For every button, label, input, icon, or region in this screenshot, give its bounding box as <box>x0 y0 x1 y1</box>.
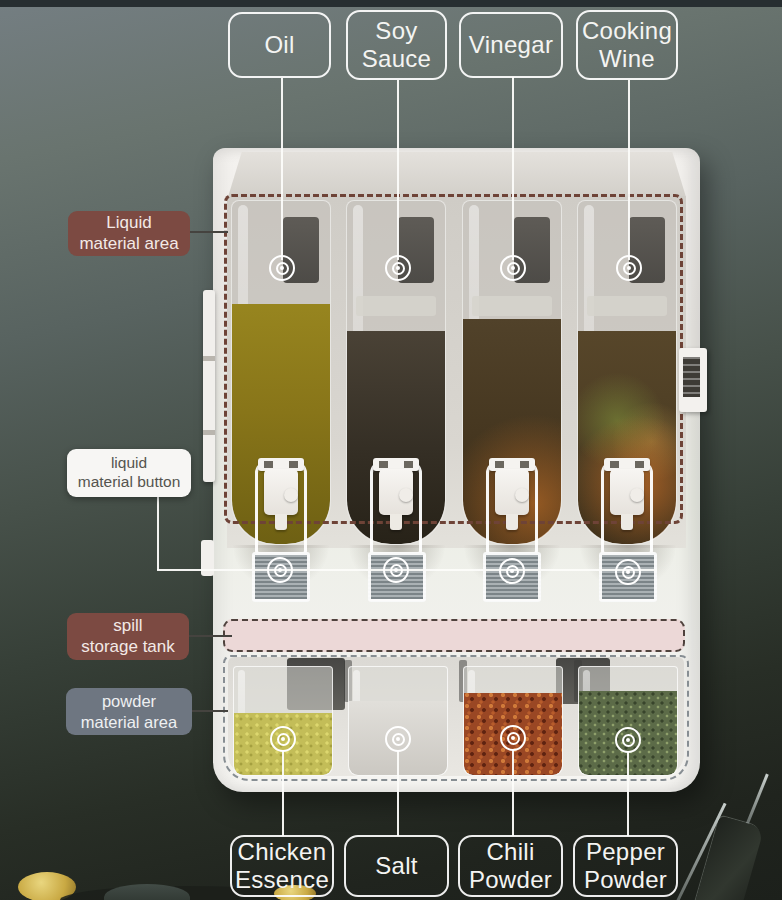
dispense-valve-vinegar <box>484 458 540 558</box>
label-line: material area <box>79 234 178 255</box>
valve-stem <box>390 514 402 530</box>
connector-line <box>512 750 514 836</box>
target-marker-icon <box>615 727 641 753</box>
wall-top-shadow <box>0 0 782 7</box>
target-marker-icon <box>499 558 525 584</box>
label-line: Liquid <box>106 213 151 234</box>
connector-line <box>188 231 228 233</box>
label-line: powder <box>102 691 156 711</box>
dispenser-top-interior <box>228 152 686 197</box>
connector-line <box>628 80 630 260</box>
target-marker-icon <box>385 255 411 281</box>
label-line: liquid <box>111 454 147 473</box>
label-line: Essence <box>235 866 329 894</box>
label-line: Soy <box>375 17 417 45</box>
label-line: Chili <box>486 838 534 866</box>
label-line: material button <box>78 473 181 492</box>
spill-storage-tank-bar <box>223 619 685 652</box>
label-line: Pepper <box>586 838 665 866</box>
top-label-oil: Oil <box>228 12 331 78</box>
dispense-valve-soy-sauce <box>368 458 424 558</box>
side-label-liquid-material-area: Liquid material area <box>68 211 190 256</box>
target-marker-icon <box>616 255 642 281</box>
powder-area-dashed-outline <box>223 655 689 781</box>
label-line: storage tank <box>81 637 175 658</box>
connector-line <box>282 750 284 836</box>
dispense-valve-oil <box>253 458 309 558</box>
valve-knob <box>284 488 298 502</box>
bottom-label-pepper-powder: Pepper Powder <box>573 835 678 897</box>
target-marker-icon <box>383 557 409 583</box>
bottom-label-salt: Salt <box>344 835 449 897</box>
valve-stem <box>506 514 518 530</box>
top-label-vinegar: Vinegar <box>459 12 563 78</box>
target-marker-icon <box>615 559 641 585</box>
target-marker-icon <box>267 557 293 583</box>
target-marker-icon <box>385 726 411 752</box>
connector-line <box>627 751 629 836</box>
valve-knob <box>630 488 644 502</box>
bottom-label-chili-powder: Chili Powder <box>458 835 563 897</box>
valve-knob <box>515 488 529 502</box>
label-line: Cooking <box>582 17 672 45</box>
label-line: Powder <box>584 866 667 894</box>
connector-line <box>512 77 514 260</box>
bottom-label-chicken-essence: Chicken Essence <box>230 835 334 897</box>
wall-mount-rail <box>203 290 215 482</box>
side-label-powder-material-area: powder material area <box>66 688 192 735</box>
connector-line <box>186 635 232 637</box>
target-marker-icon <box>269 255 295 281</box>
label-line: Wine <box>599 45 655 73</box>
side-clip-label <box>683 357 700 397</box>
chopstick <box>744 774 769 829</box>
label-line: spill <box>113 616 142 637</box>
label-line: Vinegar <box>469 31 553 59</box>
target-marker-icon <box>500 725 526 751</box>
connector-line <box>281 78 283 260</box>
connector-line <box>188 710 228 712</box>
top-label-cooking-wine: Cooking Wine <box>576 10 678 80</box>
label-line: Powder <box>469 866 552 894</box>
connector-line <box>157 496 159 570</box>
label-line: Salt <box>375 852 418 880</box>
connector-line <box>397 750 399 836</box>
dispense-valve-cooking-wine <box>599 458 655 558</box>
target-marker-icon <box>270 726 296 752</box>
product-annotation-scene: Oil Soy Sauce Vinegar Cooking Wine Liqui… <box>0 0 782 900</box>
side-label-spill-storage-tank: spill storage tank <box>67 613 189 660</box>
side-label-liquid-material-button: liquid material button <box>67 449 191 497</box>
target-marker-icon <box>500 255 526 281</box>
label-line: material area <box>81 712 177 732</box>
valve-knob <box>399 488 413 502</box>
top-label-soy-sauce: Soy Sauce <box>346 10 447 80</box>
knife-blade <box>694 816 764 900</box>
valve-stem <box>621 514 633 530</box>
connector-line <box>397 80 399 260</box>
label-line: Oil <box>264 31 294 59</box>
label-line: Sauce <box>362 45 432 73</box>
valve-stem <box>275 514 287 530</box>
label-line: Chicken <box>238 838 327 866</box>
